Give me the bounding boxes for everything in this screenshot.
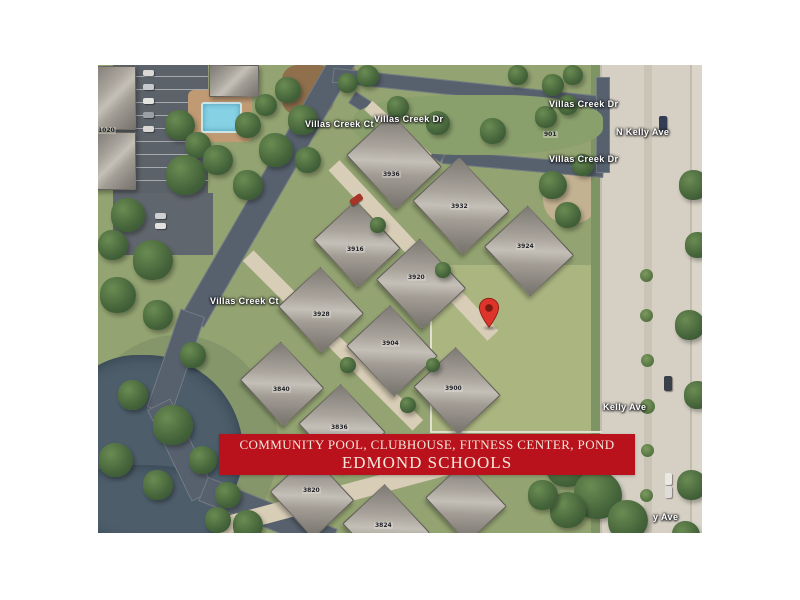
tree bbox=[98, 230, 128, 260]
street-label: Kelly Ave bbox=[603, 402, 646, 412]
tree bbox=[542, 74, 564, 96]
tree bbox=[203, 145, 233, 175]
tree bbox=[357, 65, 379, 87]
parked-car bbox=[155, 213, 166, 219]
tree bbox=[233, 170, 263, 200]
tree bbox=[539, 171, 567, 199]
tree bbox=[111, 198, 145, 232]
tree bbox=[255, 94, 277, 116]
street-label: y Ave bbox=[653, 512, 678, 522]
car-on-road bbox=[665, 473, 672, 485]
location-pin-icon bbox=[478, 297, 500, 329]
tree bbox=[259, 133, 293, 167]
house-number-label: 3936 bbox=[382, 171, 401, 178]
tree bbox=[400, 397, 416, 413]
street-label: Villas Creek Ct bbox=[210, 296, 279, 306]
tree bbox=[480, 118, 506, 144]
car-on-road bbox=[665, 486, 672, 498]
tree bbox=[235, 112, 261, 138]
median-bush bbox=[641, 354, 654, 367]
banner-amenities-text: COMMUNITY POOL, CLUBHOUSE, FITNESS CENTE… bbox=[219, 437, 635, 453]
house-number-label: 3840 bbox=[272, 386, 291, 393]
tree bbox=[100, 277, 136, 313]
house-number-label: 3836 bbox=[330, 424, 349, 431]
street-label: Villas Creek Dr bbox=[549, 99, 618, 109]
parked-car bbox=[143, 84, 154, 90]
listing-image: Villas Creek CtVillas Creek DrVillas Cre… bbox=[0, 0, 800, 600]
clubhouse-roof bbox=[209, 65, 259, 97]
median-bush bbox=[640, 269, 653, 282]
tree bbox=[180, 342, 206, 368]
house-number-label: 3924 bbox=[516, 243, 535, 250]
tree bbox=[426, 358, 440, 372]
building-roof bbox=[98, 132, 136, 190]
house-number-label: 3824 bbox=[374, 522, 393, 529]
banner-schools-text: EDMOND SCHOOLS bbox=[219, 453, 635, 472]
house-number-label: 3928 bbox=[312, 311, 331, 318]
tree bbox=[295, 147, 321, 173]
tree bbox=[508, 65, 528, 85]
tree bbox=[118, 380, 148, 410]
building-roof bbox=[98, 66, 136, 130]
street-label: Villas Creek Dr bbox=[374, 114, 443, 124]
median-bush bbox=[640, 489, 653, 502]
tree bbox=[563, 65, 583, 85]
tree bbox=[338, 73, 358, 93]
info-banner: COMMUNITY POOL, CLUBHOUSE, FITNESS CENTE… bbox=[219, 434, 635, 475]
tree bbox=[99, 443, 133, 477]
tree bbox=[435, 262, 451, 278]
car-on-road bbox=[664, 376, 672, 391]
tree bbox=[205, 507, 231, 533]
parked-car bbox=[143, 98, 154, 104]
tree bbox=[684, 381, 702, 409]
tree bbox=[685, 232, 702, 258]
tree bbox=[166, 155, 206, 195]
tree bbox=[370, 217, 386, 233]
parked-car bbox=[155, 223, 166, 229]
house-number-label: 901 bbox=[543, 131, 558, 138]
parked-car bbox=[143, 70, 154, 76]
house-number-label: 3900 bbox=[444, 385, 463, 392]
house-number-label: 3904 bbox=[381, 340, 400, 347]
tree bbox=[153, 405, 193, 445]
house-number-label: 1020 bbox=[98, 127, 116, 134]
tree bbox=[189, 446, 217, 474]
house-number-label: 3916 bbox=[346, 246, 365, 253]
house-number-label: 3920 bbox=[407, 274, 426, 281]
tree bbox=[143, 300, 173, 330]
median-bush bbox=[641, 444, 654, 457]
parked-car bbox=[143, 112, 154, 118]
tree bbox=[133, 240, 173, 280]
tree bbox=[679, 170, 702, 200]
tree bbox=[275, 77, 301, 103]
parked-car bbox=[143, 126, 154, 132]
street-label: N Kelly Ave bbox=[616, 127, 669, 137]
street-label: Villas Creek Ct bbox=[305, 119, 374, 129]
tree bbox=[675, 310, 702, 340]
tree bbox=[535, 106, 557, 128]
tree bbox=[555, 202, 581, 228]
tree bbox=[528, 480, 558, 510]
house-number-label: 3820 bbox=[302, 487, 321, 494]
tree bbox=[677, 470, 702, 500]
tree bbox=[340, 357, 356, 373]
median-bush bbox=[640, 309, 653, 322]
tree bbox=[215, 482, 241, 508]
house-number-label: 3932 bbox=[450, 203, 469, 210]
tree bbox=[143, 470, 173, 500]
street-label: Villas Creek Dr bbox=[549, 154, 618, 164]
